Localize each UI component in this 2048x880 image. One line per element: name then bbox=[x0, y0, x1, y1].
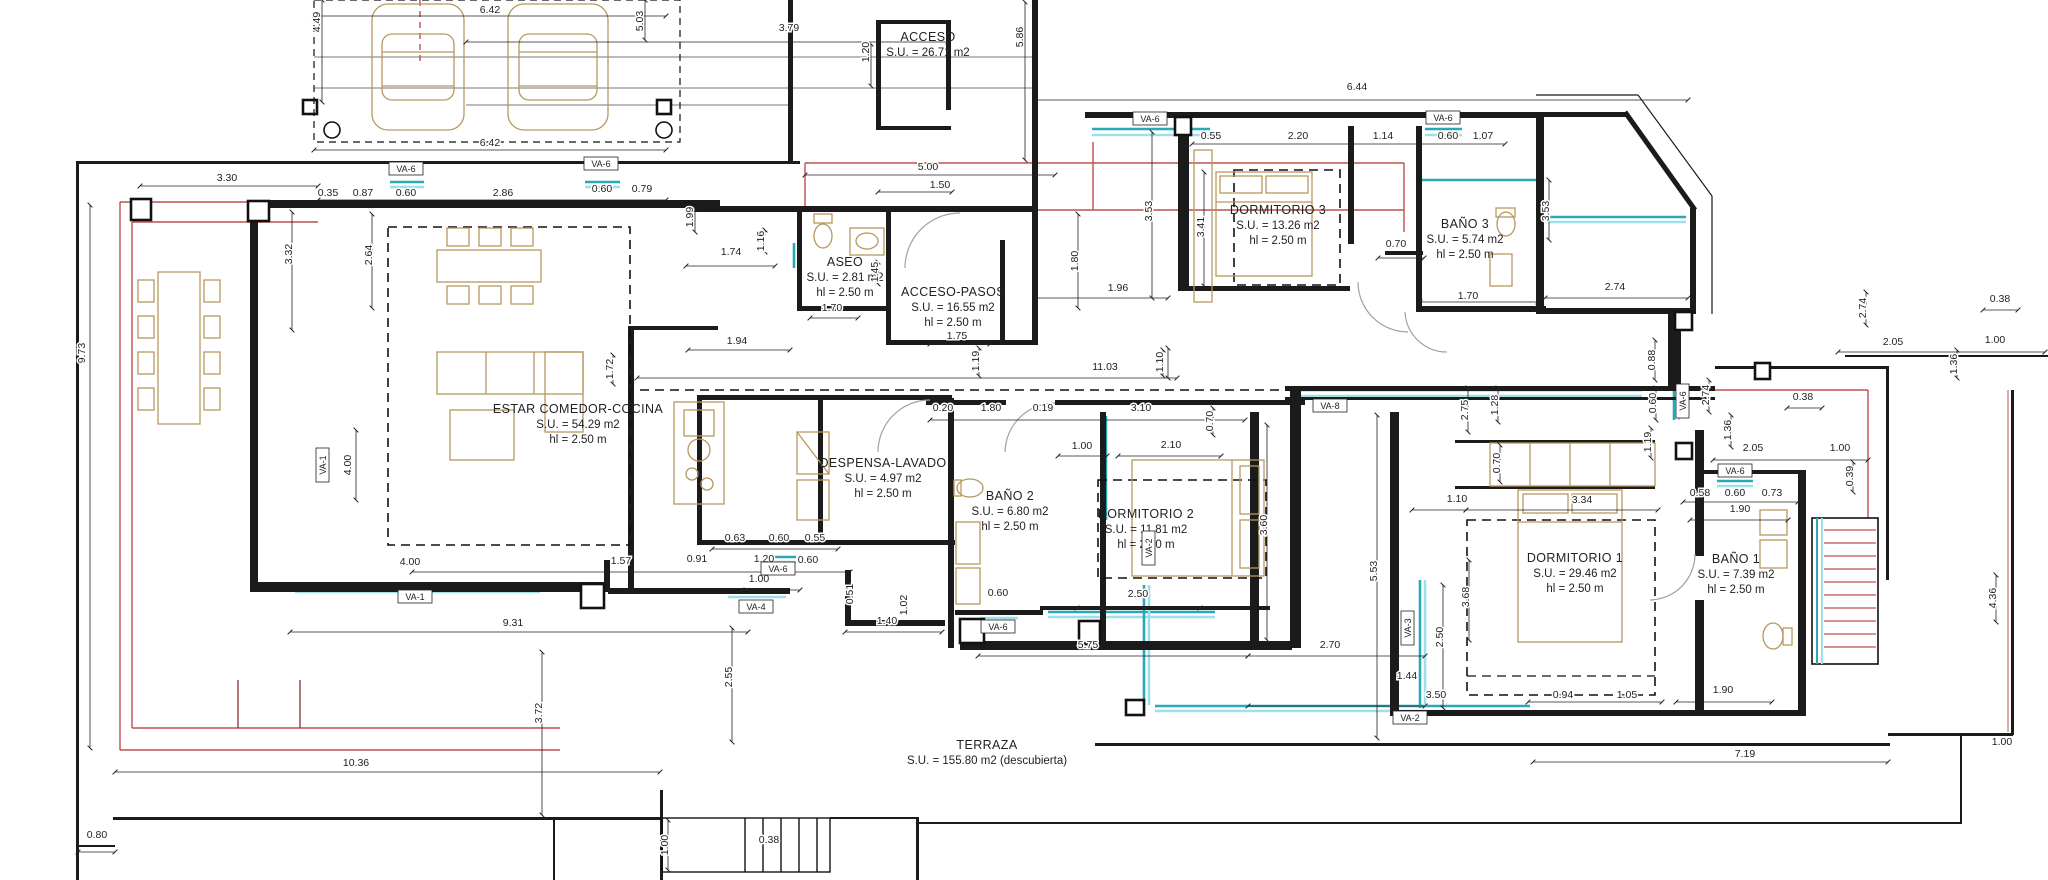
dimension-label: 1.14 bbox=[1373, 130, 1394, 142]
dimension-label: 0.60 bbox=[592, 183, 613, 195]
window-label-text: VA-6 bbox=[591, 159, 610, 169]
dimension-label: 1.96 bbox=[1108, 282, 1129, 294]
dimension-label: 2.55 bbox=[723, 667, 735, 688]
dimension-label: 1.19 bbox=[1642, 432, 1654, 453]
dimension-label: 2.74 bbox=[1605, 281, 1626, 293]
room-sub-estar-comedor-cocina: S.U. = 54.29 m2 bbox=[536, 419, 619, 431]
dimension-lines bbox=[78, 0, 2045, 870]
dimension-label: 3.53 bbox=[1540, 201, 1552, 222]
dimension-label: 1.00 bbox=[1992, 736, 2013, 748]
dimension-label: 6.44 bbox=[1347, 81, 1368, 93]
dimension-label: 0.60 bbox=[1438, 130, 1459, 142]
room-label-estar-comedor-cocina: ESTAR COMEDOR-COCINA bbox=[493, 402, 664, 416]
dimension-label: 1.80 bbox=[1069, 251, 1081, 272]
room-sub-bano1: hl = 2.50 m bbox=[1707, 584, 1764, 596]
dimension-label: 2.64 bbox=[363, 245, 375, 266]
room-sub-despensa-lavado: S.U. = 4.97 m2 bbox=[844, 473, 921, 485]
dimension-label: 1.16 bbox=[755, 231, 767, 252]
dimension-label: 1.07 bbox=[1473, 130, 1494, 142]
dimension-label: 6.42 bbox=[480, 137, 501, 149]
dimension-label: 2.74 bbox=[1857, 298, 1869, 319]
room-sub-dormitorio1: hl = 2.50 m bbox=[1546, 583, 1603, 595]
room-sub-bano3: hl = 2.50 m bbox=[1436, 249, 1493, 261]
window-label-text: VA-6 bbox=[1140, 114, 1159, 124]
dimension-label: 1.80 bbox=[981, 402, 1002, 414]
dimension-label: 0.70 bbox=[1386, 238, 1407, 250]
floor-plan-page: ACCESOS.U. = 26.71 m2ASEOS.U. = 2.81 m2h… bbox=[0, 0, 2048, 880]
exterior-stairs-bottom bbox=[662, 818, 830, 872]
floor-plan-canvas: ACCESOS.U. = 26.71 m2ASEOS.U. = 2.81 m2h… bbox=[0, 0, 2048, 880]
dimension-label: 7.19 bbox=[1735, 748, 1756, 760]
dimension-label: 4.49 bbox=[311, 12, 323, 33]
room-label-acceso-pasos: ACCESO-PASOS bbox=[901, 285, 1005, 299]
dimension-label: 3.60 bbox=[1258, 515, 1270, 536]
window-label-text: VA-6 bbox=[1725, 466, 1744, 476]
dimension-label: 2.70 bbox=[1320, 639, 1341, 651]
dimension-label: 1.45 bbox=[869, 262, 881, 283]
dimension-label: 1.94 bbox=[727, 335, 748, 347]
dimension-label: 0.73 bbox=[1762, 487, 1783, 499]
dimension-label: 1.28 bbox=[1489, 395, 1501, 416]
dimension-label: 0.94 bbox=[1553, 689, 1574, 701]
dimension-label: 0.79 bbox=[632, 183, 653, 195]
dimension-label: 1.50 bbox=[930, 179, 951, 191]
room-label-bano2: BAÑO 2 bbox=[986, 489, 1034, 503]
dimension-label: 1.70 bbox=[822, 302, 843, 314]
room-sub-aseo: hl = 2.50 m bbox=[816, 287, 873, 299]
dimension-label: 4.00 bbox=[342, 455, 354, 476]
dimension-label: 0.35 bbox=[318, 187, 339, 199]
window-label-text: VA-1 bbox=[318, 455, 328, 474]
room-sub-estar-comedor-cocina: hl = 2.50 m bbox=[549, 434, 606, 446]
room-sub-terraza: S.U. = 155.80 m2 (descubierta) bbox=[907, 755, 1067, 767]
dimension-label: 4.00 bbox=[400, 556, 421, 568]
dimension-label: 0.88 bbox=[1646, 350, 1658, 371]
dimension-label: 5.03 bbox=[634, 11, 646, 32]
dimension-label: 2.10 bbox=[1161, 439, 1182, 451]
dimension-label: 1.10 bbox=[1447, 493, 1468, 505]
dimension-label: 3.68 bbox=[1460, 587, 1472, 608]
dimension-label: 5.86 bbox=[1014, 27, 1026, 48]
room-label-terraza: TERRAZA bbox=[956, 738, 1017, 752]
window-label-text: VA-6 bbox=[988, 622, 1007, 632]
room-sub-bano1: S.U. = 7.39 m2 bbox=[1697, 569, 1774, 581]
dimension-label: 1.57 bbox=[611, 555, 632, 567]
dimension-label: 0.70 bbox=[1204, 411, 1216, 432]
dimension-label: 5.75 bbox=[1078, 639, 1099, 651]
dimension-label: 0.58 bbox=[1690, 487, 1711, 499]
dimension-label: 11.03 bbox=[1092, 361, 1118, 373]
dimension-label: 1.10 bbox=[1154, 352, 1166, 373]
dimension-label: 1.40 bbox=[877, 615, 898, 627]
dimension-label: 0.60 bbox=[1725, 487, 1746, 499]
dimension-label: 3.50 bbox=[1426, 689, 1447, 701]
dimension-label: 0.60 bbox=[1647, 393, 1659, 414]
dimension-label: 1.00 bbox=[1985, 334, 2006, 346]
room-label-despensa-lavado: DESPENSA-LAVADO bbox=[819, 456, 946, 470]
dimension-label: 0.60 bbox=[769, 532, 790, 544]
window-label-text: VA-2 bbox=[1144, 538, 1154, 557]
dimension-label: 3.30 bbox=[217, 172, 238, 184]
dimension-label: 3.53 bbox=[1143, 201, 1155, 222]
exterior-stairs-right bbox=[1812, 518, 1878, 664]
room-label-dormitorio2: DORMITORIO 2 bbox=[1098, 507, 1194, 521]
room-sub-acceso-pasos: hl = 2.50 m bbox=[924, 317, 981, 329]
dimension-label: 5.53 bbox=[1368, 561, 1380, 582]
dimension-label: 0.38 bbox=[759, 834, 780, 846]
dimension-label: 3.72 bbox=[533, 703, 545, 724]
dimension-label: 2.05 bbox=[1743, 442, 1764, 454]
dimension-label: 0.55 bbox=[1201, 130, 1222, 142]
dimension-label: 5.00 bbox=[918, 161, 939, 173]
dimension-label: 2.05 bbox=[1883, 336, 1904, 348]
dimension-label: 0.60 bbox=[396, 187, 417, 199]
dimension-label: 1.74 bbox=[721, 246, 742, 258]
bathroom3-fixtures bbox=[1490, 208, 1515, 286]
dimension-label: 2.50 bbox=[1128, 588, 1149, 600]
bathroom2-fixtures bbox=[954, 479, 983, 604]
dimension-label: 0.60 bbox=[988, 587, 1009, 599]
window-label-text: VA-6 bbox=[768, 564, 787, 574]
site-lines bbox=[314, 57, 1032, 105]
window-label-text: VA-1 bbox=[405, 592, 424, 602]
room-sub-dormitorio3: hl = 2.50 m bbox=[1249, 235, 1306, 247]
pantry-cabinets bbox=[797, 432, 829, 520]
dimension-label: 3.32 bbox=[283, 244, 295, 265]
dimension-label: 6.42 bbox=[480, 4, 501, 16]
window-label-text: VA-6 bbox=[396, 164, 415, 174]
dimension-label: 0.20 bbox=[933, 402, 954, 414]
window-label-text: VA-4 bbox=[746, 602, 765, 612]
room-label-dormitorio1: DORMITORIO 1 bbox=[1527, 551, 1623, 565]
dining-table bbox=[437, 228, 541, 304]
bed-dorm1 bbox=[1490, 443, 1655, 642]
window-label-text: VA-6 bbox=[1433, 113, 1452, 123]
dimension-label: 2.86 bbox=[493, 187, 514, 199]
dimension-label: 1.99 bbox=[684, 207, 696, 228]
dimension-label: 1.00 bbox=[1072, 440, 1093, 452]
dimension-label: 0.87 bbox=[353, 187, 374, 199]
room-label-acceso: ACCESO bbox=[900, 30, 955, 44]
dimension-label: 3.41 bbox=[1195, 217, 1207, 238]
room-label-dormitorio3: DORMITORIO 3 bbox=[1230, 203, 1326, 217]
window-label-text: VA-8 bbox=[1320, 401, 1339, 411]
dimension-label: 1.36 bbox=[1948, 354, 1960, 375]
dimension-label: 2.20 bbox=[1288, 130, 1309, 142]
room-sub-bano2: S.U. = 6.80 m2 bbox=[971, 506, 1048, 518]
dimension-label: 2.74 bbox=[1700, 385, 1712, 406]
dimension-label: 1.00 bbox=[1830, 442, 1851, 454]
dimension-label: 2.50 bbox=[1434, 627, 1446, 648]
dimension-label: 1.05 bbox=[1617, 689, 1638, 701]
dimension-label: 0.38 bbox=[1793, 391, 1814, 403]
dimension-label: 0.63 bbox=[725, 532, 746, 544]
dimension-label: 1.02 bbox=[898, 595, 910, 616]
dimension-label: 3.79 bbox=[779, 22, 800, 34]
dimension-label: 0.80 bbox=[87, 829, 108, 841]
room-sub-dormitorio1: S.U. = 29.46 m2 bbox=[1533, 568, 1616, 580]
room-sub-acceso: S.U. = 26.71 m2 bbox=[886, 47, 969, 59]
dimension-label: 9.73 bbox=[76, 343, 88, 364]
dimension-label: 1.90 bbox=[1713, 684, 1734, 696]
room-label-bano1: BAÑO 1 bbox=[1712, 552, 1760, 566]
room-sub-despensa-lavado: hl = 2.50 m bbox=[854, 488, 911, 500]
dimension-label: 1.00 bbox=[659, 835, 671, 856]
window-label-text: VA-3 bbox=[1403, 618, 1413, 637]
window-label-text: VA-6 bbox=[1678, 391, 1688, 410]
dimension-label: 1.75 bbox=[947, 330, 968, 342]
aseo-fixtures bbox=[814, 214, 884, 255]
room-label-bano3: BAÑO 3 bbox=[1441, 217, 1489, 231]
dimension-label: 0.51 bbox=[844, 584, 856, 605]
dimension-label: 1.72 bbox=[604, 359, 616, 380]
dimension-label: 0.55 bbox=[805, 532, 826, 544]
car bbox=[372, 4, 464, 130]
dimension-label: 3.34 bbox=[1572, 494, 1593, 506]
dimension-label: 0.39 bbox=[1844, 466, 1856, 487]
red-terrace-lines bbox=[120, 0, 2008, 750]
dimension-label: 1.36 bbox=[1722, 420, 1734, 441]
dimension-label: 0.19 bbox=[1033, 402, 1054, 414]
room-sub-bano2: hl = 2.50 m bbox=[981, 521, 1038, 533]
dimension-label: 0.60 bbox=[798, 554, 819, 566]
room-sub-dormitorio3: S.U. = 13.26 m2 bbox=[1236, 220, 1319, 232]
dimension-label: 9.31 bbox=[503, 617, 524, 629]
window-label-text: VA-2 bbox=[1400, 713, 1419, 723]
room-sub-acceso-pasos: S.U. = 16.55 m2 bbox=[911, 302, 994, 314]
dimension-label: 1.90 bbox=[1730, 503, 1751, 515]
dimension-label: 0.70 bbox=[1491, 453, 1503, 474]
car bbox=[508, 4, 608, 130]
terrace-dining-table bbox=[138, 272, 220, 424]
dimension-label: 10.36 bbox=[343, 757, 369, 769]
dimension-label: 1.20 bbox=[860, 42, 872, 63]
dimension-label: 2.75 bbox=[1459, 400, 1471, 421]
room-sub-bano3: S.U. = 5.74 m2 bbox=[1426, 234, 1503, 246]
dimension-label: 4.36 bbox=[1987, 588, 1999, 609]
dimension-label: 1.19 bbox=[970, 351, 982, 372]
dimension-label: 0.38 bbox=[1990, 293, 2011, 305]
dimension-label: 1.70 bbox=[1458, 290, 1479, 302]
dimension-label: 1.44 bbox=[1397, 670, 1418, 682]
dimension-label: 3.10 bbox=[1131, 402, 1152, 414]
room-label-aseo: ASEO bbox=[827, 255, 863, 269]
dimension-label: 0.91 bbox=[687, 553, 708, 565]
